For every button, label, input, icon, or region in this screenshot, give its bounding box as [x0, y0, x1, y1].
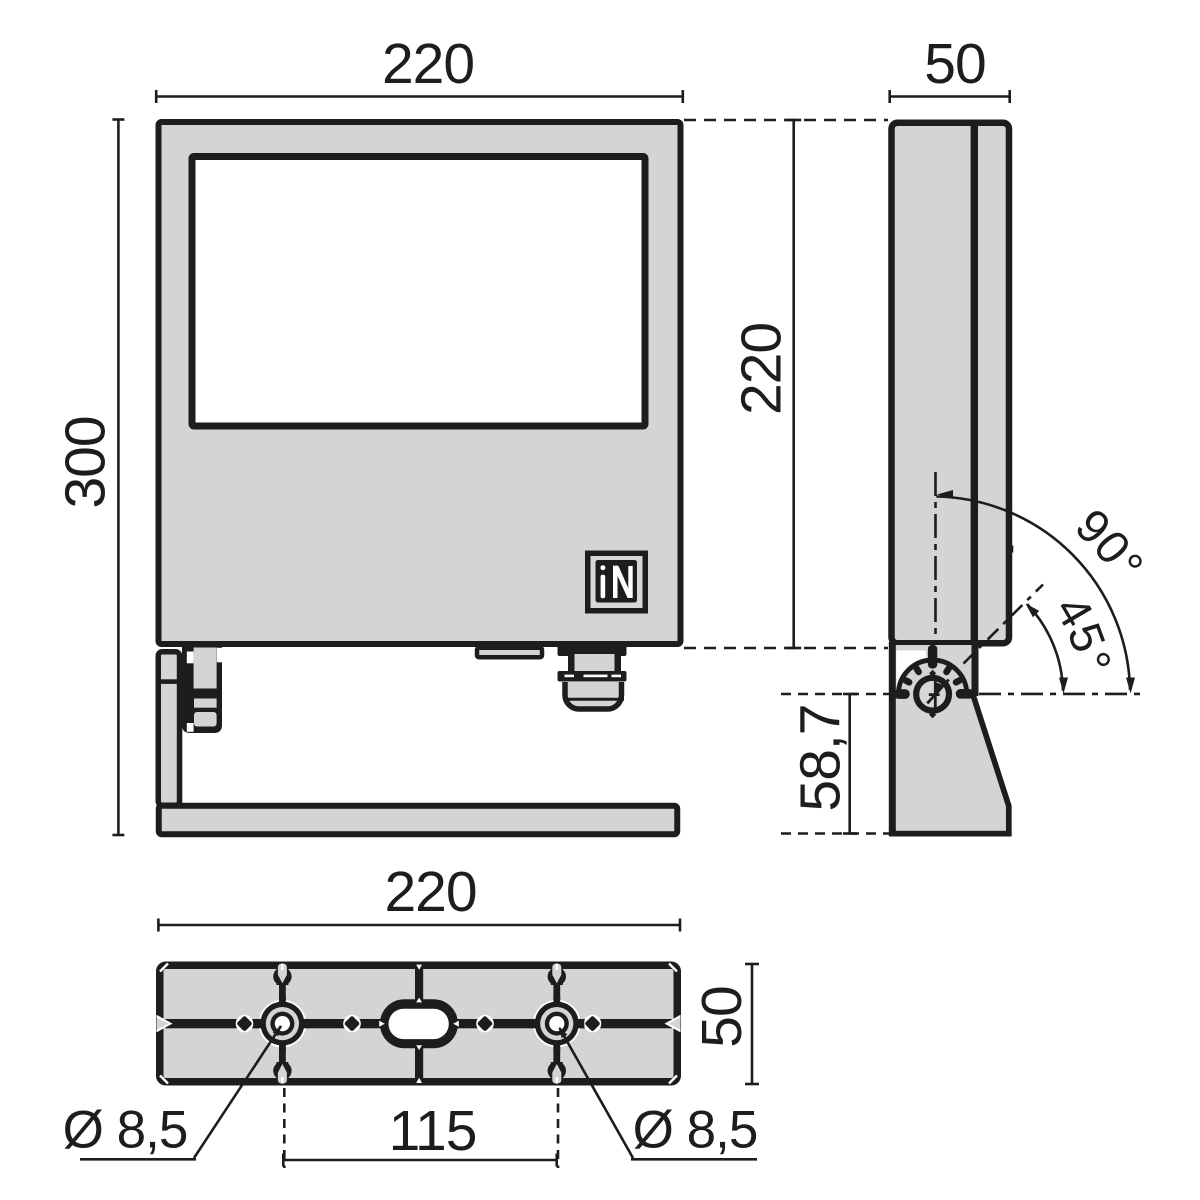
svg-text:50: 50: [690, 986, 754, 1047]
svg-text:58,7: 58,7: [789, 705, 853, 812]
svg-text:220: 220: [384, 860, 476, 924]
svg-text:50: 50: [924, 32, 985, 96]
svg-text:220: 220: [382, 32, 474, 96]
svg-text:220: 220: [730, 323, 794, 415]
svg-text:300: 300: [54, 416, 118, 508]
svg-text:115: 115: [389, 1099, 477, 1163]
svg-text:Ø 8,5: Ø 8,5: [633, 1101, 758, 1160]
svg-text:Ø 8,5: Ø 8,5: [63, 1101, 188, 1160]
